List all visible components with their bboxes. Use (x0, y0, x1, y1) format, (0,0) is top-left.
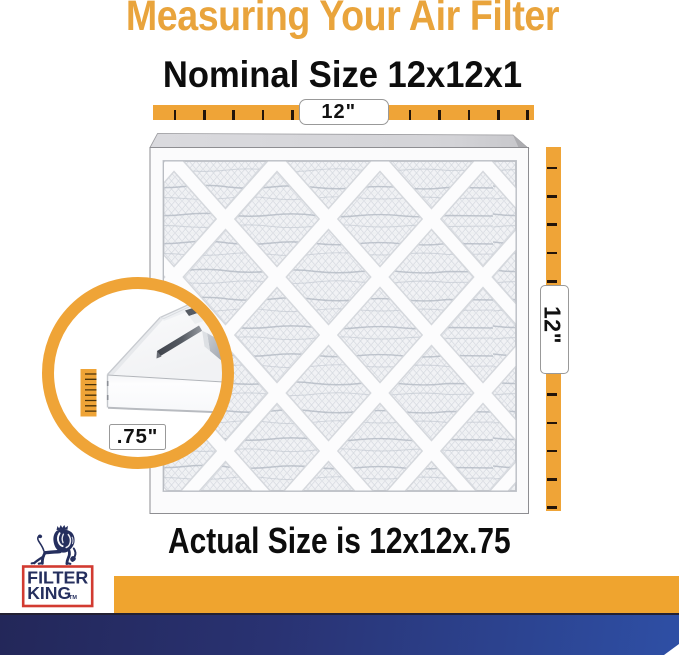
svg-text:KING: KING (27, 583, 71, 603)
svg-text:TM: TM (69, 595, 77, 601)
